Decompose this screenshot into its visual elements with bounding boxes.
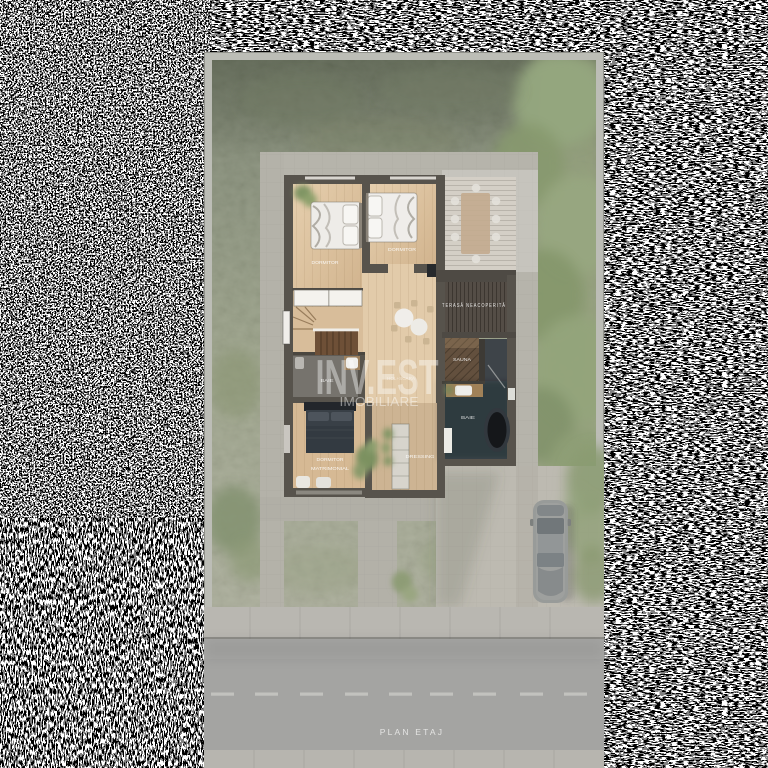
svg-text:DORMITOR: DORMITOR <box>388 247 417 253</box>
svg-text:MATRIMONIAL: MATRIMONIAL <box>311 466 349 472</box>
svg-text:IMOBILIARE: IMOBILIARE <box>340 395 419 409</box>
svg-text:TERASĂ NEACOPERITĂ: TERASĂ NEACOPERITĂ <box>442 302 506 309</box>
svg-text:SAUNA: SAUNA <box>453 357 472 363</box>
svg-text:DORMITOR: DORMITOR <box>317 457 345 463</box>
svg-text:PLAN ETAJ: PLAN ETAJ <box>380 727 445 737</box>
svg-text:DRESSING: DRESSING <box>406 454 435 460</box>
svg-text:BAIE: BAIE <box>461 415 475 421</box>
svg-text:DORMITOR: DORMITOR <box>312 260 340 266</box>
